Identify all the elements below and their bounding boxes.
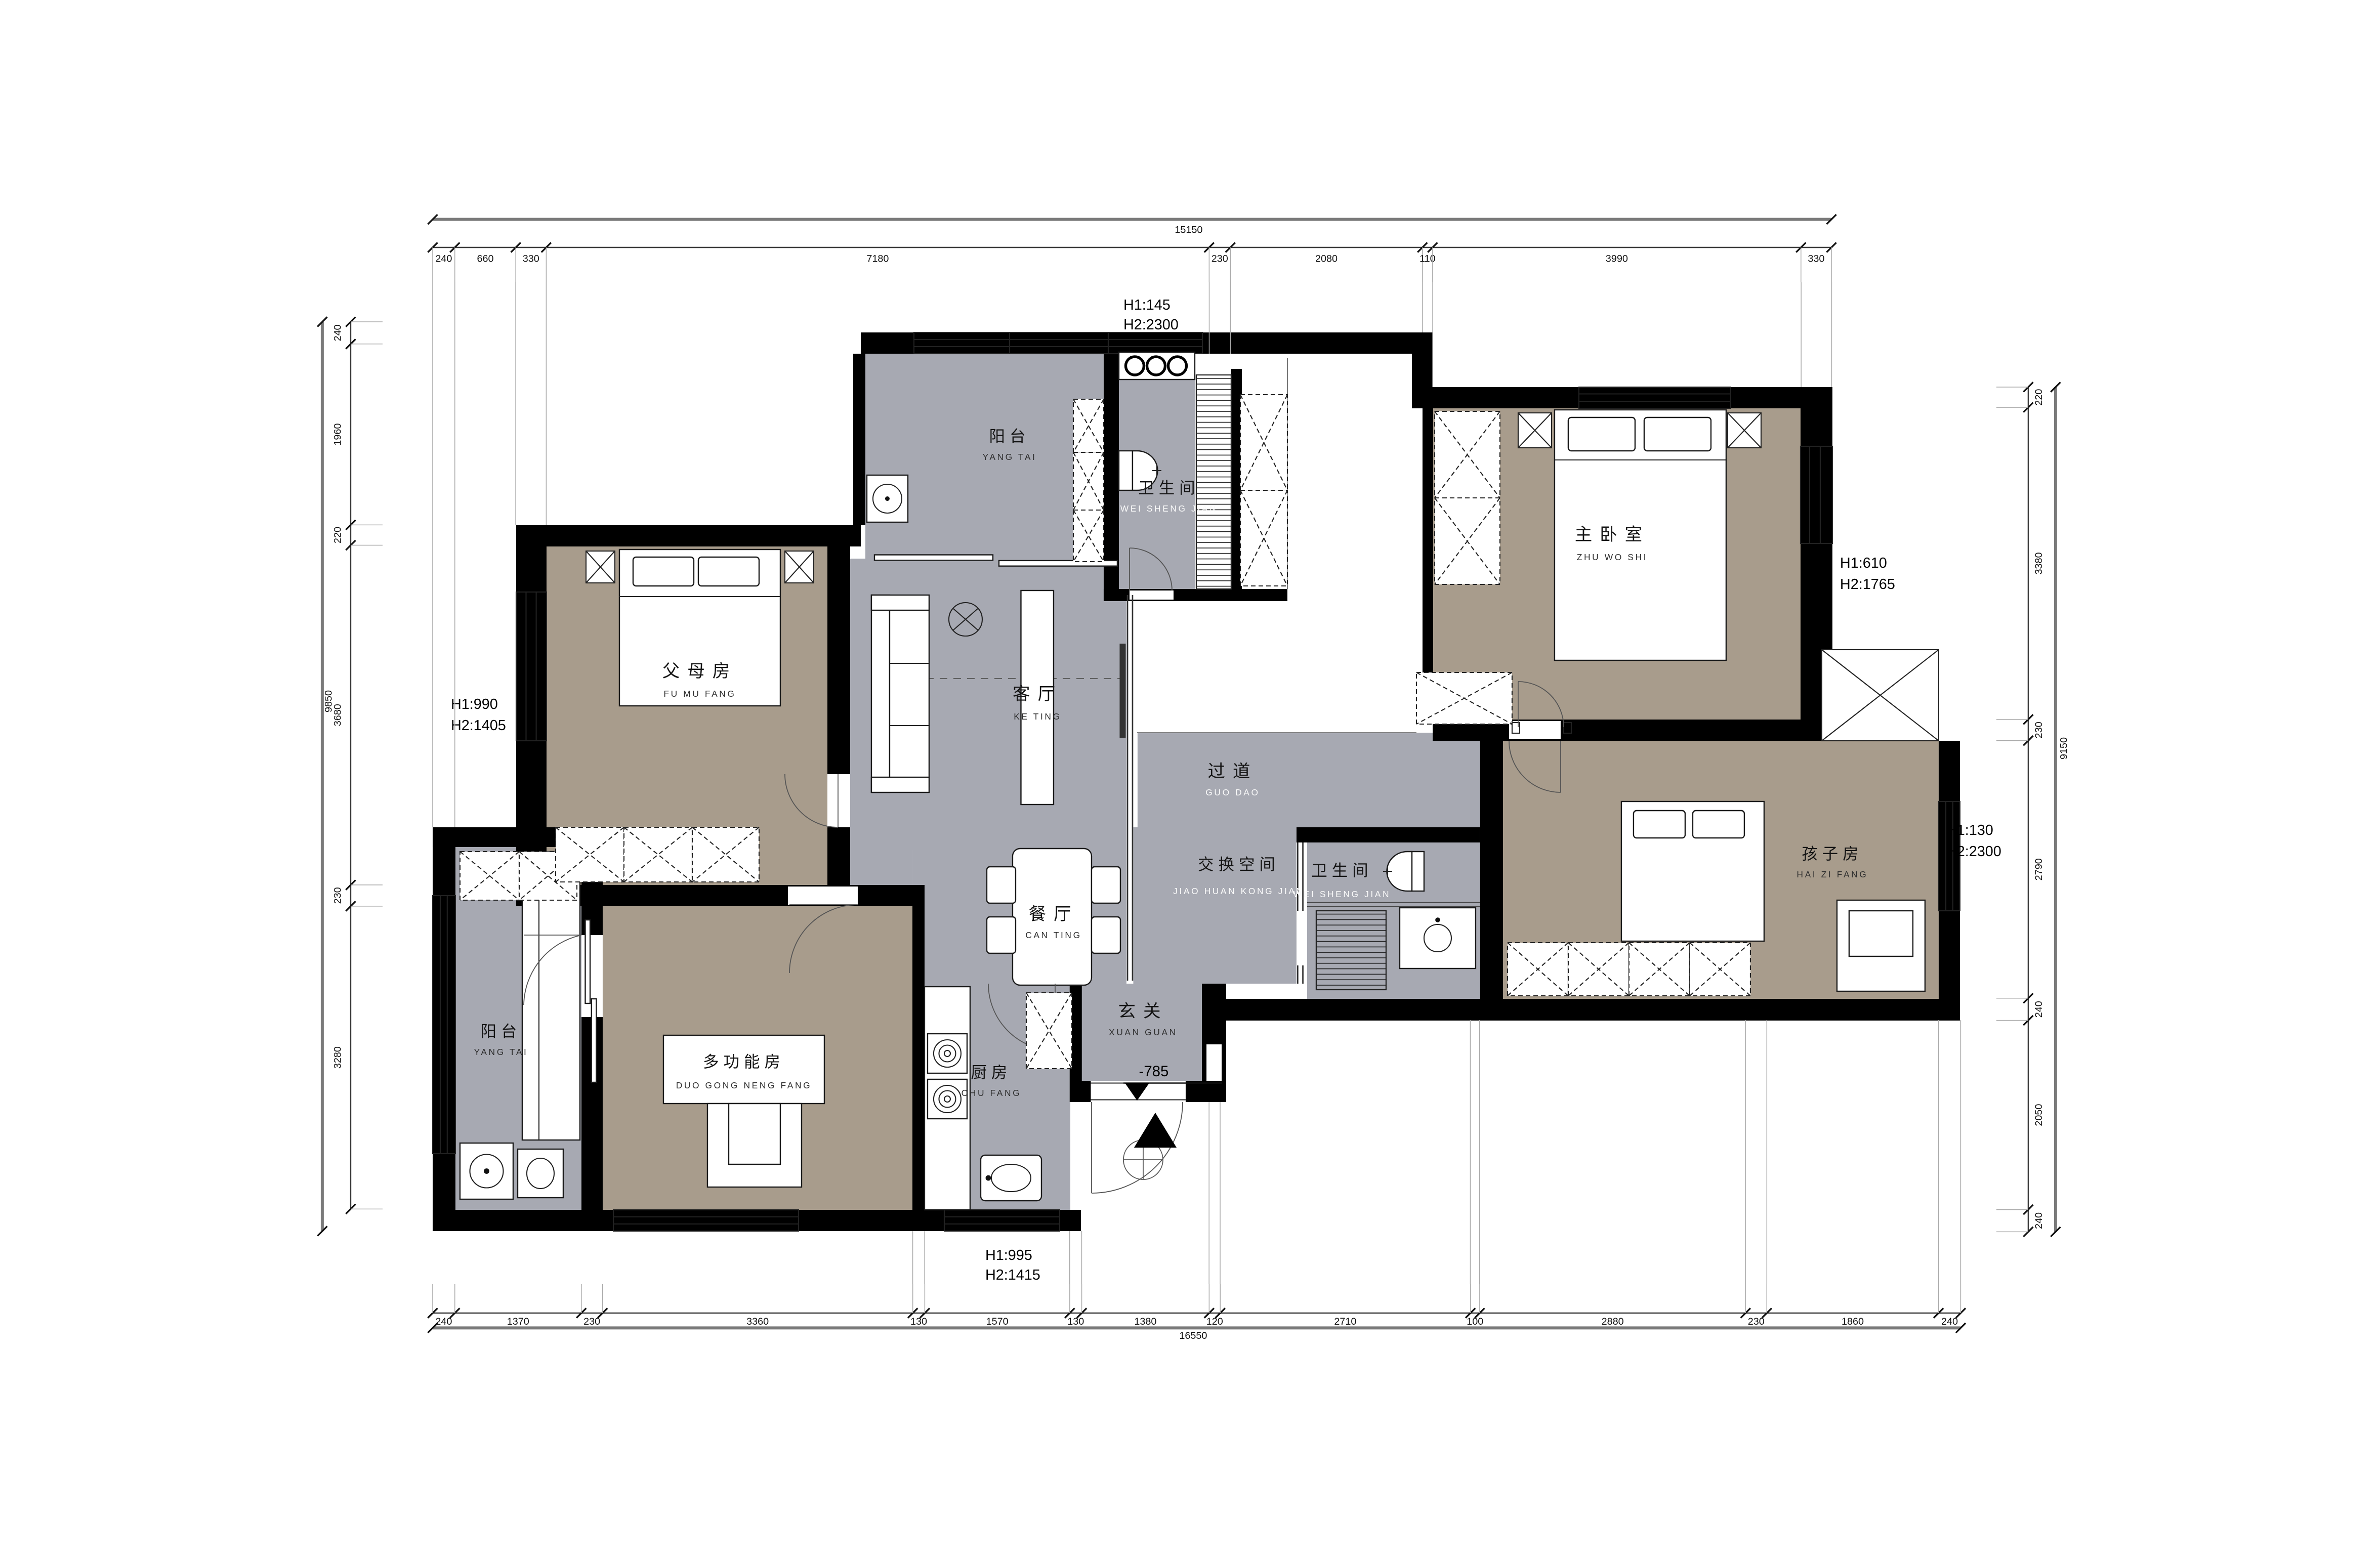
svg-text:卫生间: 卫生间	[1311, 862, 1372, 880]
xbox-cabinet	[460, 852, 519, 900]
dim-segment-label: 130	[1067, 1316, 1084, 1327]
room-label-yangtai-left: 阳台 YANG TAI	[474, 1023, 528, 1057]
dim-total-label: 16550	[1179, 1330, 1207, 1341]
xbox-cabinet	[1073, 399, 1104, 452]
pillow	[1644, 417, 1711, 451]
xbox-cabinet	[1568, 943, 1629, 996]
annotation-left: H1:990 H2:1405	[451, 696, 506, 734]
svg-text:H2:1765: H2:1765	[1840, 576, 1895, 593]
svg-text:交换空间: 交换空间	[1198, 856, 1280, 874]
balcony-slider-panel	[874, 555, 993, 561]
dim-segment-label: 1380	[1134, 1316, 1156, 1327]
dim-segment-label: 1370	[507, 1316, 529, 1327]
xbox-cabinet	[1240, 395, 1287, 490]
stove-burner-icon	[928, 1034, 967, 1073]
dim-segment-label: 1570	[986, 1316, 1009, 1327]
dim-segment-label: 2790	[2033, 858, 2044, 880]
dim-segment-label: 2710	[1334, 1316, 1356, 1327]
room-label-zhuwoshi: 主卧室 ZHU WO SHI	[1575, 525, 1650, 562]
room-label-keting: 客厅 KE TING	[1013, 684, 1063, 722]
xbox-cabinet	[1690, 943, 1750, 996]
svg-text:厨房: 厨房	[971, 1064, 1012, 1082]
svg-text:YANG TAI: YANG TAI	[982, 452, 1036, 462]
xbox-cabinet	[785, 551, 814, 583]
dim-segment-label: 240	[332, 324, 343, 341]
svg-text:KE TING: KE TING	[1014, 711, 1061, 722]
svg-text:CHU FANG: CHU FANG	[962, 1088, 1022, 1098]
xbox-cabinet	[1435, 411, 1500, 498]
children-desk-top	[1849, 911, 1913, 956]
dim-segment-label: 130	[910, 1316, 927, 1327]
xbox-cabinet	[1728, 413, 1761, 448]
dining-chair	[987, 867, 1016, 903]
pillow	[1634, 811, 1685, 838]
svg-text:HAI ZI FANG: HAI ZI FANG	[1797, 869, 1868, 879]
washing-machine-icon	[867, 475, 908, 522]
xbox-cabinet	[1822, 650, 1939, 741]
dim-segment-label: 110	[1419, 253, 1436, 264]
dining-chair	[1092, 867, 1120, 903]
xbox-cabinet	[1073, 510, 1104, 562]
dim-segment-label: 240	[435, 253, 452, 264]
svg-text:CAN TING: CAN TING	[1025, 930, 1082, 940]
mop-sink-icon	[518, 1149, 563, 1198]
svg-text:卫生间: 卫生间	[1138, 479, 1199, 497]
dim-segment-label: 3280	[332, 1046, 343, 1069]
dim-segment-label: 230	[332, 887, 343, 904]
annotation-top: H1:145 H2:2300	[1123, 297, 1179, 333]
pillow	[1693, 811, 1744, 838]
svg-text:H1:990: H1:990	[451, 696, 498, 712]
svg-text:H2:2300: H2:2300	[1946, 843, 2001, 860]
svg-text:玄关: 玄关	[1118, 1001, 1168, 1022]
dim-total-label: 9850	[323, 690, 334, 712]
annotation-right-upper: H1:610 H2:1765	[1840, 555, 1895, 593]
svg-text:父母房: 父母房	[662, 661, 737, 682]
dim-segment-label: 2080	[1315, 253, 1338, 264]
dim-segment-label: 230	[2033, 722, 2044, 738]
xbox-cabinet	[1508, 943, 1568, 996]
shower-icon	[1196, 375, 1231, 589]
pillow	[633, 557, 694, 586]
svg-text:客厅: 客厅	[1013, 684, 1063, 704]
dim-segment-label: 1860	[1842, 1316, 1864, 1327]
dim-segment-label: 220	[332, 527, 343, 543]
dim-segment-label: 120	[1206, 1316, 1223, 1327]
dim-segment-label: 1960	[332, 424, 343, 446]
dim-segment-label: 3360	[746, 1316, 769, 1327]
dim-segment-label: 240	[2033, 1212, 2044, 1229]
sofa-armrest	[871, 595, 929, 610]
hallway-floor	[1138, 733, 1503, 827]
exchange-floor	[1133, 827, 1296, 984]
xbox-cabinet	[1240, 490, 1287, 586]
washbasin-counter	[1119, 352, 1195, 379]
balcony-left-slider	[592, 999, 597, 1082]
svg-text:WEI SHENG JIAN: WEI SHENG JIAN	[1293, 889, 1391, 899]
sofa-armrest	[871, 777, 929, 792]
balcony-left-slider	[585, 920, 590, 1003]
svg-text:孩子房: 孩子房	[1802, 845, 1863, 863]
xbox-cabinet	[1026, 993, 1072, 1069]
xbox-cabinet	[1518, 413, 1552, 448]
dim-segment-label: 3380	[2033, 552, 2044, 574]
shower-icon	[1316, 911, 1386, 990]
dim-segment-label: 7180	[866, 253, 889, 264]
svg-text:H1:130: H1:130	[1946, 822, 1993, 838]
dim-total-label: 9150	[2058, 737, 2069, 759]
xbox-cabinet	[624, 827, 692, 882]
dim-total-label: 15150	[1175, 224, 1202, 235]
room-label-canting: 餐厅 CAN TING	[1025, 904, 1082, 940]
pillow	[1568, 417, 1635, 451]
svg-text:H2:1405: H2:1405	[451, 717, 506, 734]
stove-burner-icon	[928, 1079, 967, 1119]
floor-plan-canvas: 阳台 YANG TAI 卫生间 WEI SHENG JIAN 主卧室 ZHU W…	[0, 0, 2380, 1562]
xbox-cabinet	[1435, 498, 1500, 584]
svg-text:H1:145: H1:145	[1123, 297, 1171, 313]
dining-chair	[1092, 917, 1120, 953]
dim-segment-label: 220	[2033, 389, 2044, 406]
dim-segment-label: 2050	[2033, 1104, 2044, 1126]
xbox-cabinet	[1416, 672, 1512, 724]
kitchen-sink-icon	[981, 1155, 1041, 1201]
room-label-yangtai-top: 阳台 YANG TAI	[982, 428, 1036, 462]
svg-text:FU MU FANG: FU MU FANG	[663, 689, 736, 699]
pillow	[698, 557, 759, 586]
dim-segment-label: 230	[1212, 253, 1228, 264]
xbox-cabinet	[1073, 452, 1104, 510]
dim-segment-label: 330	[1808, 253, 1824, 264]
dim-segment-label: 330	[523, 253, 539, 264]
vanity-sink-icon	[1400, 908, 1476, 968]
svg-text:过道: 过道	[1207, 762, 1258, 782]
washing-machine-icon	[460, 1143, 513, 1199]
room-label-xuanguan: 玄关 XUAN GUAN	[1109, 1001, 1178, 1037]
dining-floor-notch	[850, 850, 912, 885]
tv-icon	[1119, 644, 1125, 738]
svg-text:GUO DAO: GUO DAO	[1205, 787, 1260, 797]
svg-text:H1:995: H1:995	[985, 1247, 1032, 1263]
svg-text:-785: -785	[1139, 1063, 1169, 1080]
svg-text:XUAN GUAN: XUAN GUAN	[1109, 1027, 1178, 1037]
entry-arrow-icon	[1134, 1113, 1177, 1148]
dim-segment-label: 3990	[1606, 253, 1628, 264]
svg-text:H1:610: H1:610	[1840, 555, 1887, 571]
dim-segment-label: 240	[2033, 1001, 2044, 1018]
xbox-cabinet	[586, 551, 615, 583]
room-label-fumufang: 父母房 FU MU FANG	[662, 661, 737, 699]
svg-text:多功能房: 多功能房	[703, 1053, 785, 1071]
annotation-bottom: H1:995 H2:1415	[985, 1247, 1040, 1283]
svg-text:阳台: 阳台	[480, 1023, 521, 1041]
svg-text:主卧室: 主卧室	[1575, 525, 1650, 545]
svg-text:H2:1415: H2:1415	[985, 1267, 1040, 1283]
dim-segment-label: 2880	[1602, 1316, 1624, 1327]
room-label-haizifang: 孩子房 HAI ZI FANG	[1797, 845, 1868, 879]
xbox-cabinet	[692, 827, 759, 882]
multi-room-desk-top	[729, 1104, 780, 1164]
dim-segment-label: 240	[1941, 1316, 1958, 1327]
room-label-guodao: 过道 GUO DAO	[1205, 762, 1260, 797]
svg-text:YANG TAI: YANG TAI	[474, 1047, 528, 1057]
sofa-back	[871, 595, 890, 792]
svg-text:WEI SHENG JIAN: WEI SHENG JIAN	[1120, 503, 1218, 514]
svg-text:餐厅: 餐厅	[1028, 904, 1078, 924]
level-triangle-icon	[1125, 1083, 1149, 1101]
xbox-cabinet	[1629, 943, 1690, 996]
svg-text:DUO GONG NENG FANG: DUO GONG NENG FANG	[676, 1080, 812, 1090]
svg-text:阳台: 阳台	[989, 428, 1030, 446]
xbox-cabinet	[556, 827, 624, 882]
svg-text:JIAO HUAN KONG JIAN: JIAO HUAN KONG JIAN	[1173, 886, 1305, 896]
svg-text:ZHU WO SHI: ZHU WO SHI	[1577, 552, 1648, 562]
dim-segment-label: 660	[477, 253, 493, 264]
dining-chair	[987, 917, 1016, 953]
sofa-seat	[890, 601, 929, 786]
dim-segment-label: 240	[435, 1316, 452, 1327]
svg-text:H2:2300: H2:2300	[1123, 317, 1179, 333]
